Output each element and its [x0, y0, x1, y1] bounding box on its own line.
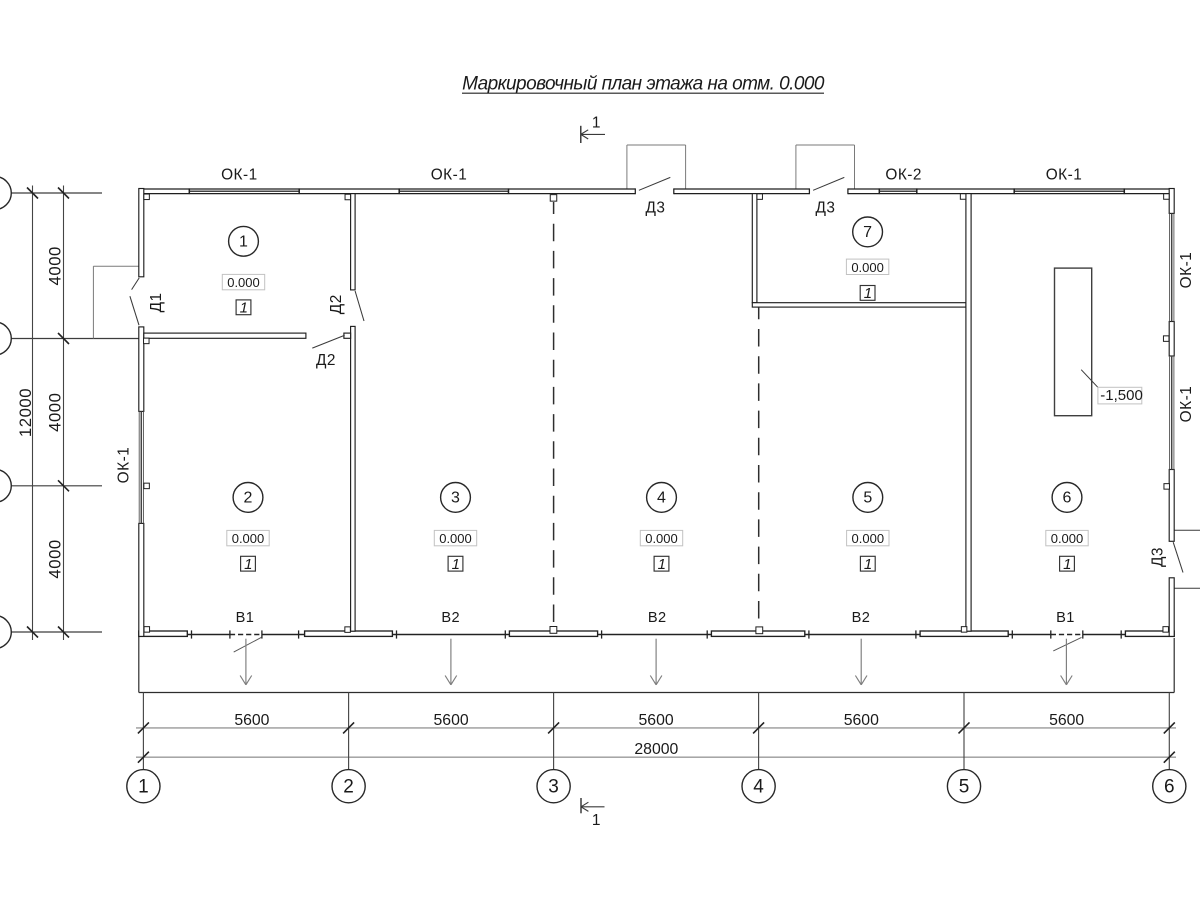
svg-text:5600: 5600 [434, 712, 469, 729]
svg-text:Д3: Д3 [816, 200, 836, 217]
svg-text:В1: В1 [1056, 610, 1075, 626]
svg-text:1: 1 [592, 114, 601, 131]
svg-text:6: 6 [1063, 490, 1072, 507]
svg-text:В2: В2 [441, 610, 460, 626]
svg-text:ОК-1: ОК-1 [1178, 386, 1195, 423]
svg-text:4: 4 [657, 490, 666, 507]
svg-text:Д3: Д3 [1149, 547, 1166, 567]
svg-text:0.000: 0.000 [227, 275, 260, 290]
svg-text:ОК-1: ОК-1 [431, 167, 468, 184]
svg-text:В2: В2 [648, 610, 667, 626]
svg-text:0.000: 0.000 [852, 531, 885, 546]
svg-text:1: 1 [1063, 556, 1071, 573]
svg-text:3: 3 [548, 776, 559, 797]
svg-text:1: 1 [592, 812, 601, 829]
svg-text:6: 6 [1164, 776, 1175, 797]
svg-text:0.000: 0.000 [1051, 531, 1084, 546]
svg-text:Д2: Д2 [328, 294, 345, 314]
svg-text:Д1: Д1 [148, 292, 165, 312]
svg-text:В1: В1 [236, 610, 255, 626]
svg-text:1: 1 [244, 556, 252, 573]
svg-text:0.000: 0.000 [851, 260, 884, 275]
svg-text:0.000: 0.000 [232, 531, 265, 546]
svg-text:ОК-2: ОК-2 [885, 167, 922, 184]
svg-text:5600: 5600 [1049, 712, 1084, 729]
svg-text:5: 5 [959, 776, 970, 797]
svg-text:4000: 4000 [46, 539, 65, 578]
svg-text:1: 1 [138, 776, 149, 797]
svg-text:4000: 4000 [46, 246, 65, 285]
svg-text:ОК-1: ОК-1 [221, 167, 258, 184]
svg-text:ОК-1: ОК-1 [1046, 167, 1083, 184]
svg-text:1: 1 [658, 556, 666, 573]
svg-text:5600: 5600 [234, 712, 269, 729]
svg-text:3: 3 [451, 490, 460, 507]
svg-text:0.000: 0.000 [439, 531, 472, 546]
svg-text:2: 2 [244, 490, 253, 507]
svg-text:ОК-1: ОК-1 [1178, 252, 1195, 289]
svg-text:1: 1 [452, 556, 460, 573]
svg-text:2: 2 [343, 776, 354, 797]
svg-text:12000: 12000 [16, 388, 35, 437]
svg-text:0.000: 0.000 [645, 531, 678, 546]
svg-text:5600: 5600 [639, 712, 674, 729]
svg-text:-1,500: -1,500 [1100, 387, 1143, 404]
svg-text:В2: В2 [852, 610, 871, 626]
svg-text:ОК-1: ОК-1 [116, 447, 133, 484]
svg-text:1: 1 [239, 233, 248, 250]
svg-text:4000: 4000 [46, 393, 65, 432]
svg-text:5600: 5600 [844, 712, 879, 729]
svg-text:1: 1 [240, 300, 248, 317]
svg-text:1: 1 [864, 285, 872, 302]
svg-text:Маркировочный план этажа на от: Маркировочный план этажа на отм. 0.000 [462, 73, 825, 94]
svg-text:Д3: Д3 [646, 200, 666, 217]
svg-text:4: 4 [753, 776, 764, 797]
svg-text:5: 5 [863, 490, 872, 507]
svg-text:Д2: Д2 [316, 352, 336, 369]
svg-text:28000: 28000 [634, 741, 678, 758]
svg-text:7: 7 [863, 224, 872, 241]
svg-text:1: 1 [864, 556, 872, 573]
